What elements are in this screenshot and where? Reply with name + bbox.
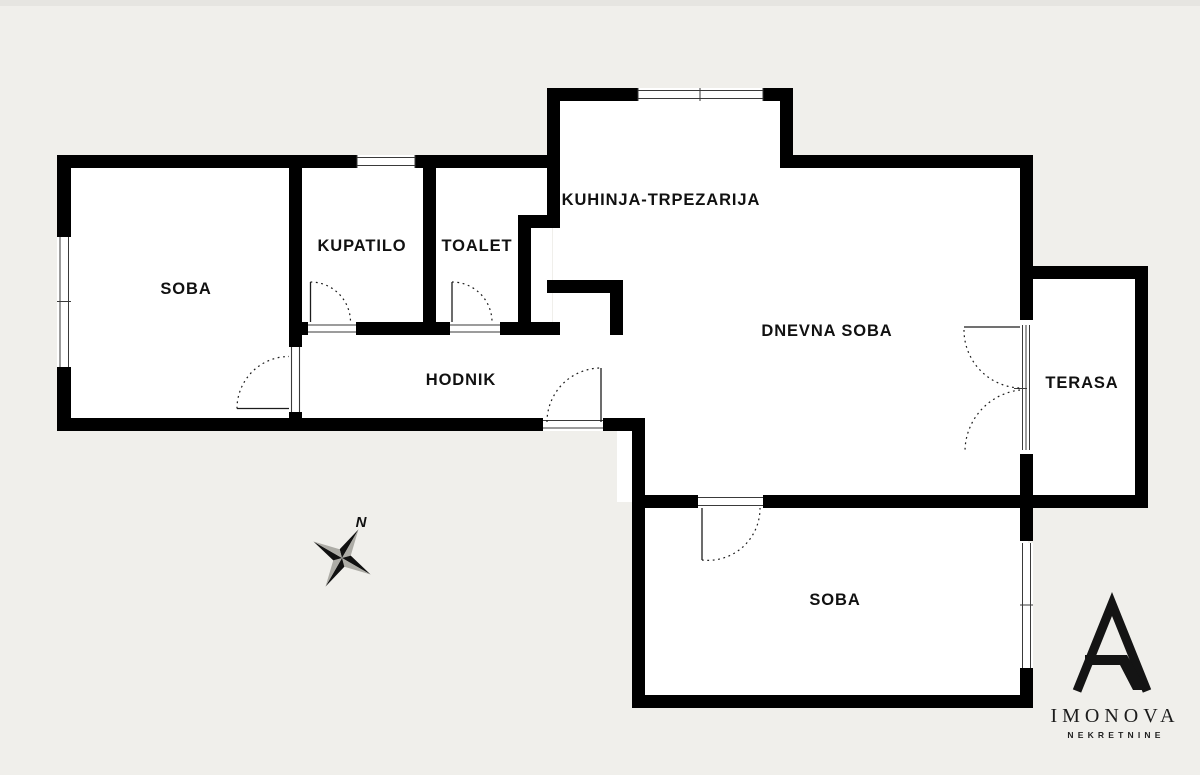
door-gap-kupatilo	[308, 322, 356, 335]
room-floor-alcove	[553, 288, 617, 332]
logo-brand-text: IMONOVA	[1050, 705, 1179, 727]
room-label-soba-bottom: SOBA	[809, 591, 860, 609]
room-label-soba-left: SOBA	[160, 280, 211, 298]
logo-tagline-text: NEKRETNINE	[1067, 730, 1164, 740]
window-gap-kupatilo	[357, 155, 415, 168]
room-label-kupatilo: KUPATILO	[317, 237, 406, 255]
room-label-hodnik: HODNIK	[426, 371, 496, 389]
room-label-dnevna-soba: DNEVNA SOBA	[761, 322, 892, 340]
room-label-toalet: TOALET	[441, 237, 512, 255]
door-gap-toalet	[450, 322, 500, 335]
floorplan-page: SOBA KUPATILO TOALET KUHINJA-TRPEZARIJA …	[0, 0, 1200, 775]
room-label-terasa: TERASA	[1045, 374, 1118, 392]
room-floor-shaft	[531, 222, 551, 328]
floorplan-drawing: SOBA KUPATILO TOALET KUHINJA-TRPEZARIJA …	[0, 0, 1200, 775]
top-strip	[0, 0, 1200, 6]
room-label-kuhinja: KUHINJA-TRPEZARIJA	[562, 191, 761, 209]
compass-north-label: N	[356, 514, 368, 531]
room-floor-hodnik	[64, 328, 639, 420]
